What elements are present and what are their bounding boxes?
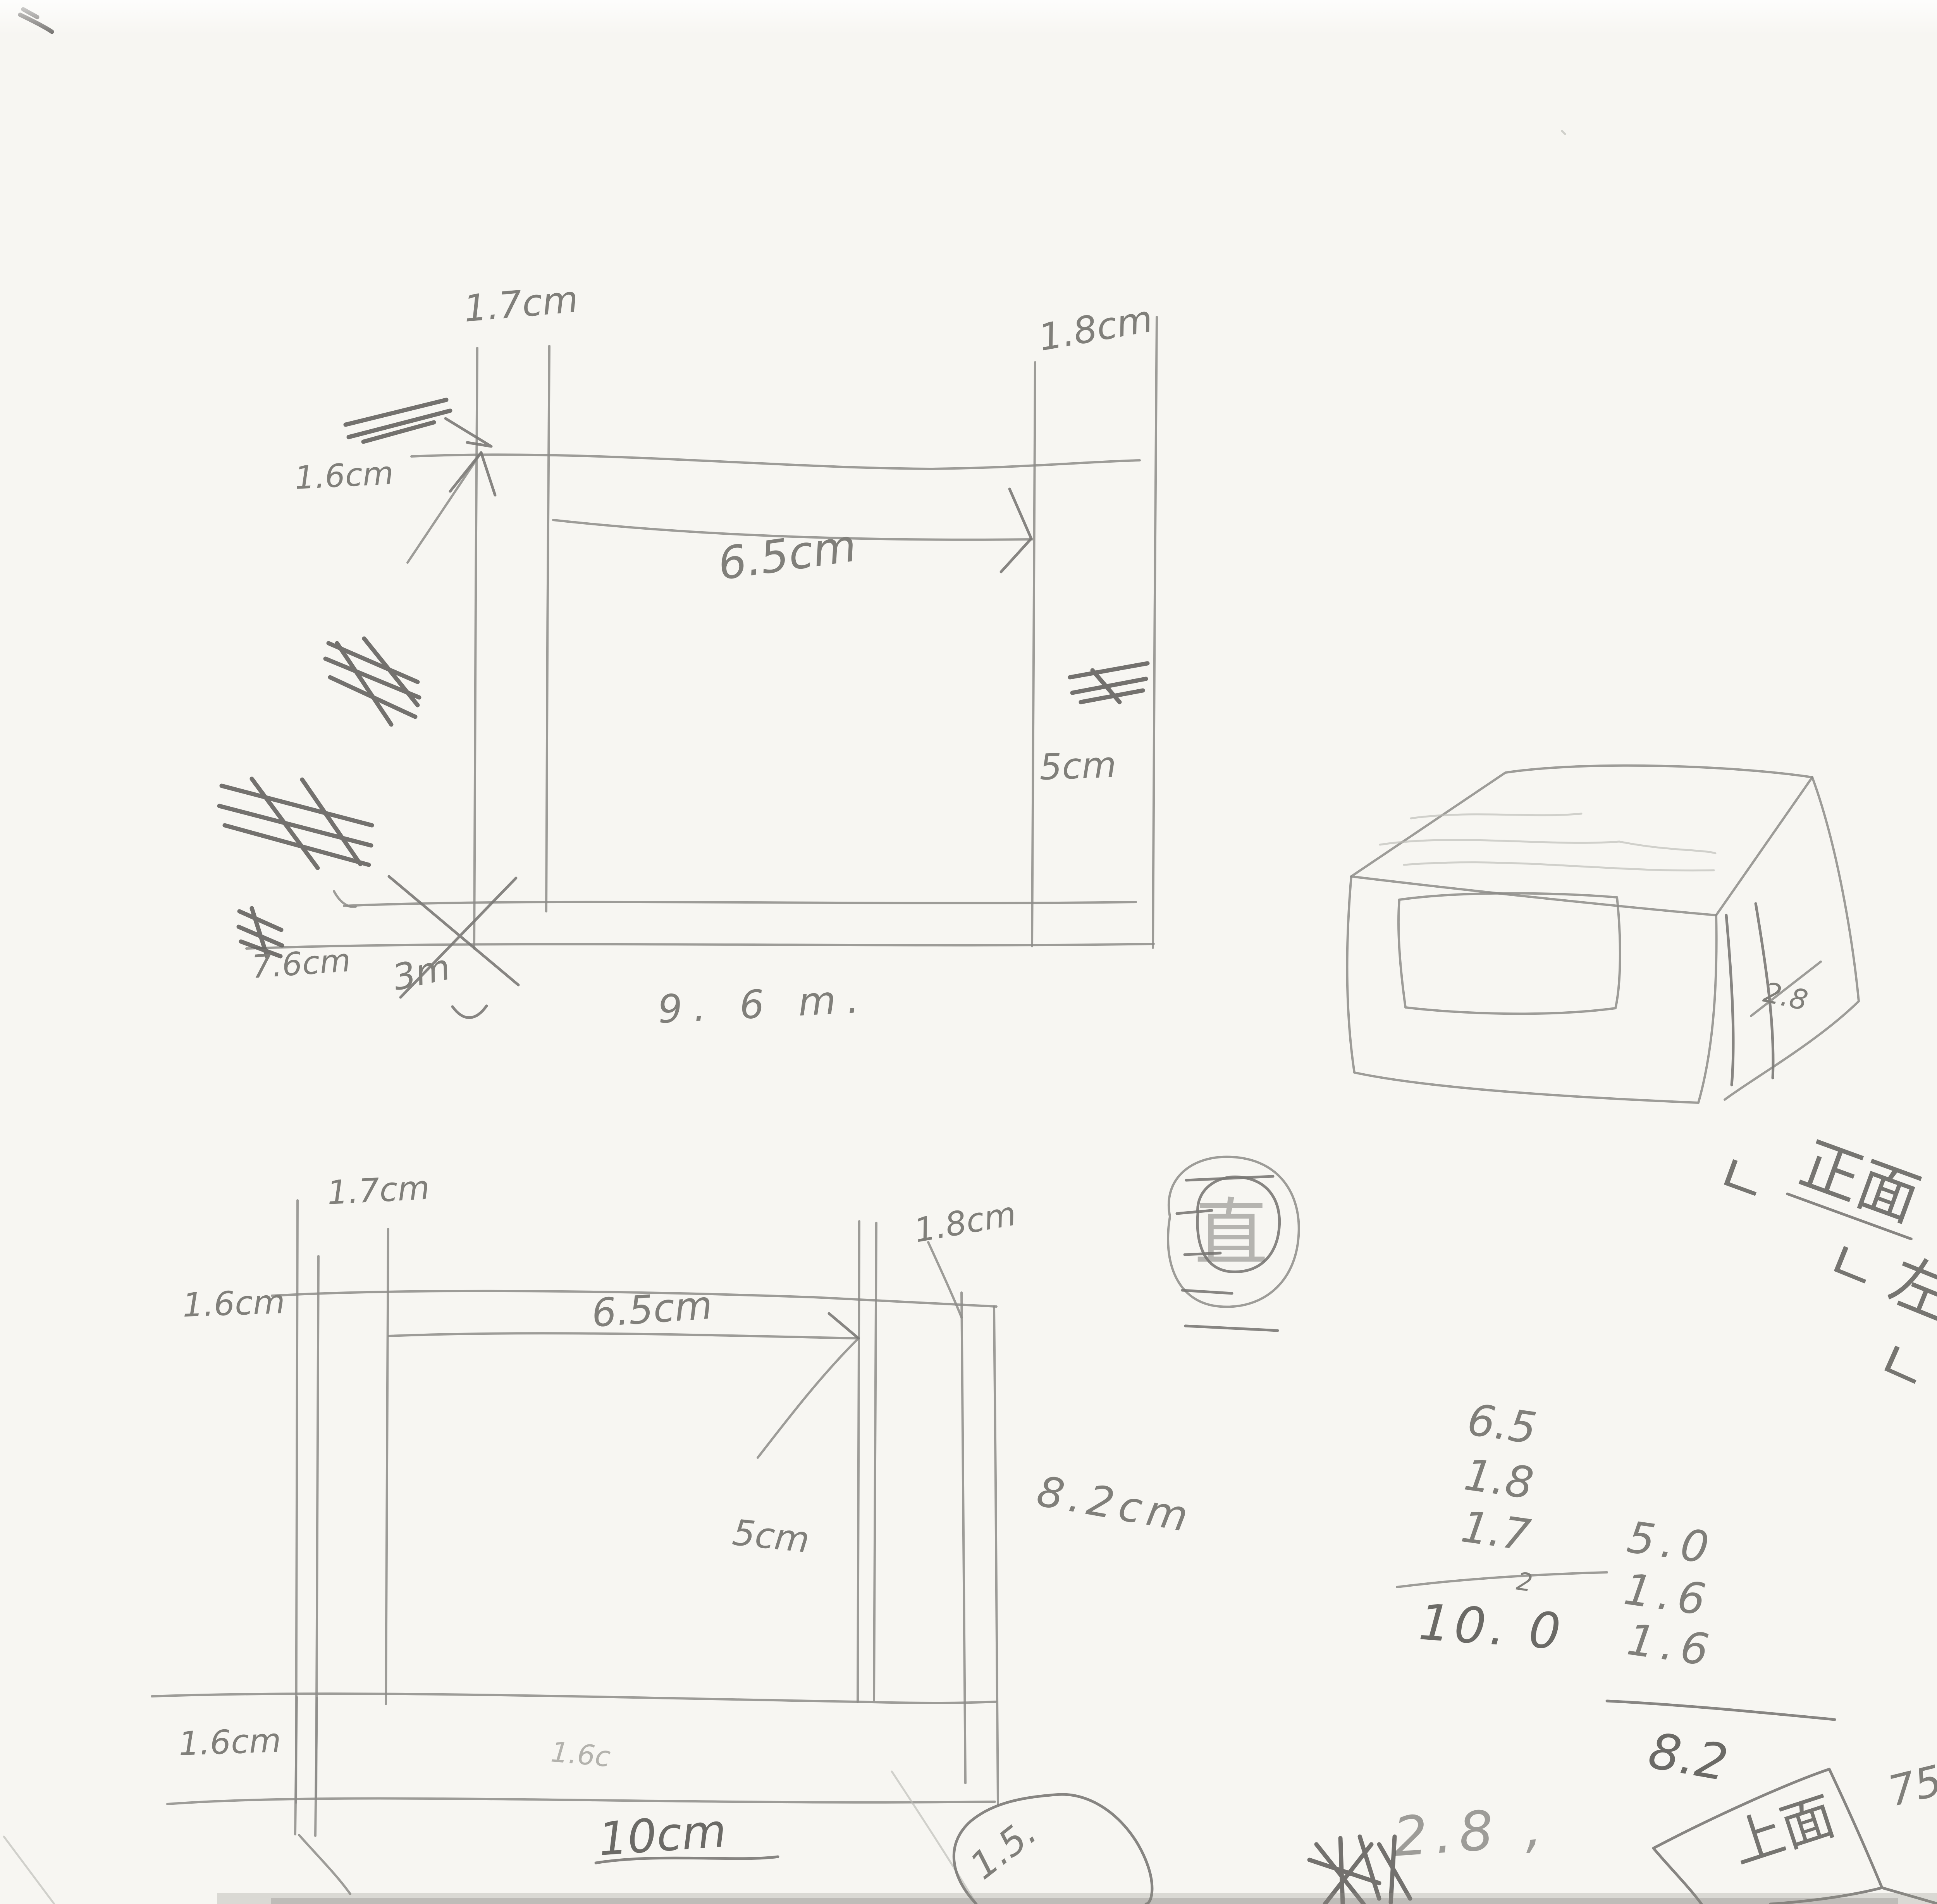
pencil-stroke-diagonal [408,453,481,563]
sum-row: 5.0 [1624,1512,1718,1574]
dim-label: 8.2cm [1033,1467,1197,1542]
dim-label: 2.8 [1760,976,1810,1017]
pointer-line [928,1242,962,1317]
corner-curve [4,1837,54,1904]
grain-line [1380,840,1715,853]
dim-label: 6.5cm [590,1283,714,1336]
sum-row: 1.8 [1461,1450,1536,1509]
top-face-dim: 75mm [1884,1737,1937,1816]
dim-label: 1.6cm [294,455,394,497]
top-face-label: 上面 [1724,1785,1842,1876]
scanned-pencil-sketch: 1.7cm 1.8cm 1.6cm 6.5cm 5cm 7.6cm 3m 9. … [0,0,1937,1904]
pencil-stroke-vertical [386,1229,388,1704]
check-prefix: ㄴ [1865,1325,1937,1408]
sum-row: 1.7 [1458,1501,1533,1561]
scribble-hatch [346,400,450,442]
dim-label: 6.5cm [715,520,859,590]
pencil-stroke-horizontal [246,944,1154,949]
bottom-notes: 2.8 , 1.5. 上面 75mm [954,1737,1937,1904]
box-right-face [1725,777,1859,1100]
circled-note: 直 [1168,1157,1299,1331]
arrow-stroke [446,418,491,446]
dim-label: 1.8cm [1036,298,1156,360]
pencil-stroke-horizontal [167,1799,995,1804]
pencil-stroke-diagonal [758,1340,857,1458]
sum-result: 8.2 [1645,1722,1732,1792]
depth-note: 2.8 , [1391,1795,1551,1869]
face-checklist: ㄴ 正面 ok. ㄴ 左右 OK ㄴ 背面 OK ㄴ 上面 ㄴ 中板 底面 底板 [1706,1085,1937,1796]
corner-mark [20,9,52,32]
addition-columns: 6.5 1.8 1.7 2 10. 0 5.0 1.6 1.6 8.2 [1397,1394,1835,1792]
carry-digit: 2 [1515,1567,1534,1598]
pencil-leg-diagonal [299,1835,350,1894]
pencil-stroke-vertical [962,1293,965,1783]
stray-dot [1562,131,1565,134]
pencil-stroke-vertical [994,1307,998,1804]
check-prefix: ㄴ [1816,1225,1891,1308]
pencil-stroke-horizontal [152,1694,996,1703]
dim-label: 1.6cm [182,1283,286,1325]
dim-label: 10cm [597,1804,728,1866]
figure-3d-box: 2.8 [1347,766,1859,1103]
sum-row: 6.5 [1464,1394,1540,1454]
pencil-stroke-horizontal [344,902,1136,906]
dim-label: 5cm [1039,744,1117,788]
pencil-stroke-vertical [858,1221,859,1702]
pencil-leg [295,1697,317,1836]
scan-edge-shadow [271,1898,1898,1904]
pencil-stroke-vertical [1032,362,1035,946]
grain-line [1411,814,1581,818]
check-prefix: ㄴ [1706,1138,1779,1220]
dim-label: 7.6cm [251,942,352,986]
check-prefix: ㄴ [1925,1422,1937,1505]
scribble-hatch [219,779,372,868]
sum-line [1607,1701,1835,1720]
arrowhead [1001,489,1031,572]
figure-large-front: 1.7cm 1.8cm 1.6cm 6.5cm 5cm 7.6cm 3m 9. … [219,278,1157,1032]
dim-label: 1.6cm [178,1722,282,1763]
dim-label: 1.7cm [326,1169,431,1212]
pencil-leg-diagonal [892,1771,976,1904]
checklist-item: ㄴ 背面 OK [1865,1306,1937,1501]
dim-label-faint: 1.6c [550,1735,612,1773]
dim-label: 1.8cm [911,1195,1019,1250]
pencil-stroke-vertical [546,346,549,911]
pencil-stroke-dimension [389,1333,858,1338]
checklist-item: ㄴ 上面 [1925,1416,1937,1560]
box-divider [1726,915,1733,1085]
dim-label-crossed: 3m [389,946,454,998]
figure-small-front: 1.7cm 1.6cm 6.5cm 1.8cm 5cm 8.2cm 1.6cm … [152,1169,1197,1904]
dim-label: 9. 6 m. [657,976,871,1032]
box-window [1399,893,1620,1014]
scribble-hatch [1070,663,1147,702]
check-squiggle [452,1006,487,1017]
dim-label: 1.7cm [462,278,580,331]
pencil-stroke-vertical [1153,317,1157,948]
grain-line [1404,862,1714,871]
scribble-hatch [325,639,419,725]
radius-note: 1.5. [962,1810,1044,1888]
pencil-stroke-horizontal [411,454,1140,469]
sum-result: 10. 0 [1417,1593,1566,1661]
pencil-stroke-vertical [874,1223,876,1700]
sketch-canvas: 1.7cm 1.8cm 1.6cm 6.5cm 5cm 7.6cm 3m 9. … [0,0,1937,1904]
sum-line [1397,1572,1607,1587]
arrowhead [829,1314,858,1338]
dim-label: 5cm [731,1511,812,1561]
circled-character: 直 [1194,1190,1268,1276]
